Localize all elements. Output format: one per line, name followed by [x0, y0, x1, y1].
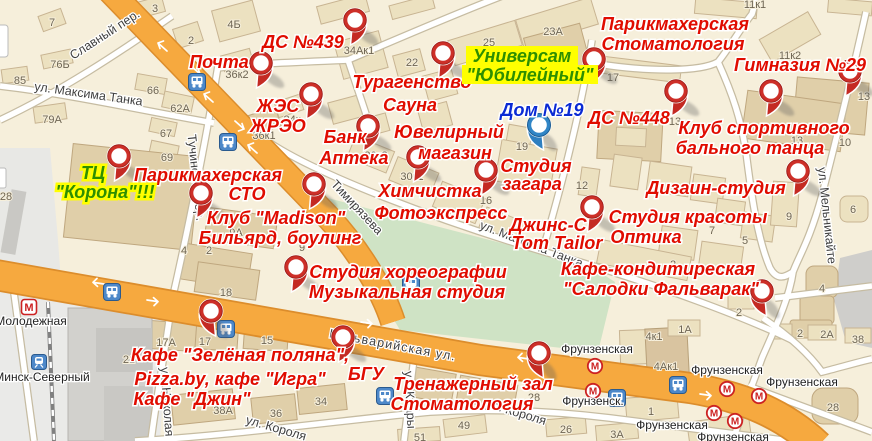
svg-text:Дизаин-студия: Дизаин-студия: [644, 178, 786, 198]
svg-text:ЖРЭО: ЖРЭО: [249, 116, 306, 136]
svg-text:2А: 2А: [820, 329, 834, 341]
svg-text:Оптика: Оптика: [610, 227, 681, 247]
svg-text:38: 38: [852, 334, 864, 346]
svg-text:ДС №439: ДС №439: [260, 32, 344, 52]
svg-text:10: 10: [839, 137, 851, 149]
svg-text:28: 28: [827, 402, 839, 414]
svg-text:ДС №448: ДС №448: [586, 108, 670, 128]
svg-text:28: 28: [0, 191, 12, 203]
svg-text:1А: 1А: [678, 324, 692, 336]
svg-text:76Б: 76Б: [50, 59, 69, 71]
svg-text:23А: 23А: [543, 26, 563, 38]
svg-text:Молодежная: Молодежная: [0, 314, 67, 328]
svg-text:67: 67: [160, 128, 172, 140]
svg-text:2: 2: [797, 328, 803, 340]
svg-text:Стоматология: Стоматология: [601, 34, 744, 54]
svg-text:Минск-Северный: Минск-Северный: [0, 370, 90, 384]
svg-text:Клуб "Madison": Клуб "Madison": [207, 208, 346, 228]
svg-text:Фрунзенская: Фрунзенская: [561, 342, 633, 356]
svg-text:62А: 62А: [170, 103, 190, 115]
svg-text:51: 51: [414, 432, 426, 441]
svg-text:Сауна: Сауна: [383, 95, 437, 115]
svg-text:36: 36: [270, 408, 282, 420]
svg-text:1: 1: [648, 406, 654, 418]
svg-text:49: 49: [458, 420, 470, 432]
svg-text:7: 7: [49, 17, 55, 29]
svg-text:69: 69: [161, 152, 173, 164]
svg-text:2: 2: [188, 35, 194, 47]
svg-text:19: 19: [516, 141, 528, 153]
svg-text:Tom Tailor: Tom Tailor: [512, 233, 604, 253]
svg-text:34: 34: [315, 396, 327, 408]
svg-text:Студия хореографии: Студия хореографии: [309, 262, 507, 282]
svg-text:Химчистка: Химчистка: [377, 181, 481, 201]
svg-text:3А: 3А: [610, 429, 624, 441]
svg-text:Тренажерный зал: Тренажерный зал: [393, 374, 553, 394]
svg-text:3: 3: [152, 3, 158, 15]
svg-text:Джинс-С: Джинс-С: [507, 215, 587, 235]
svg-text:М: М: [24, 302, 33, 314]
svg-text:Ювелирный: Ювелирный: [394, 122, 504, 142]
svg-text:"Корона"!!!: "Корона"!!!: [55, 182, 154, 202]
svg-text:БГУ: БГУ: [348, 364, 386, 384]
svg-text:66: 66: [147, 85, 159, 97]
svg-text:4: 4: [819, 283, 825, 295]
svg-text:Музыкальная студия: Музыкальная студия: [309, 282, 506, 302]
svg-text:Почта: Почта: [189, 52, 249, 72]
svg-text:Гимназия №29: Гимназия №29: [734, 55, 866, 75]
svg-text:ТЦ: ТЦ: [81, 163, 105, 183]
svg-text:22: 22: [406, 57, 418, 69]
svg-text:Банк: Банк: [324, 127, 368, 147]
svg-text:Стоматология: Стоматология: [390, 394, 533, 414]
svg-text:34Ак1: 34Ак1: [344, 45, 375, 57]
svg-text:4Ак1: 4Ак1: [654, 361, 678, 373]
svg-text:Турагенство: Турагенство: [352, 72, 471, 92]
svg-text:Фрунзенская: Фрунзенская: [691, 363, 763, 377]
svg-text:Кафе-кондитиреская: Кафе-кондитиреская: [561, 259, 756, 279]
svg-text:Парикмахерская: Парикмахерская: [601, 14, 749, 34]
svg-text:Кафе "Зелёная поляна",: Кафе "Зелёная поляна",: [131, 345, 349, 365]
svg-text:Кафе "Джин": Кафе "Джин": [133, 389, 251, 409]
svg-text:Клуб спортивного: Клуб спортивного: [678, 118, 849, 138]
svg-text:12: 12: [576, 180, 588, 192]
svg-text:5: 5: [742, 235, 748, 247]
svg-text:Pizza.by, кафе "Игра": Pizza.by, кафе "Игра": [134, 369, 326, 389]
svg-text:Универсам: Универсам: [473, 46, 571, 66]
svg-text:4Б: 4Б: [227, 19, 240, 31]
svg-text:СТО: СТО: [228, 184, 265, 204]
svg-text:85: 85: [14, 75, 26, 87]
svg-text:9: 9: [786, 211, 792, 223]
svg-text:"Юбилейный": "Юбилейный": [466, 65, 594, 85]
svg-text:4к1: 4к1: [645, 331, 662, 343]
svg-text:Студия: Студия: [500, 156, 572, 176]
svg-text:18: 18: [220, 287, 232, 299]
svg-text:магазин: магазин: [418, 143, 492, 163]
svg-text:Студия красоты: Студия красоты: [609, 207, 768, 227]
svg-text:Дом №19: Дом №19: [499, 100, 584, 120]
svg-text:загара: загара: [502, 174, 562, 194]
svg-text:Фрунзенская: Фрунзенская: [697, 430, 769, 441]
svg-text:Бильярд, боулинг: Бильярд, боулинг: [199, 228, 362, 248]
svg-text:6: 6: [850, 204, 856, 216]
svg-text:Аптека: Аптека: [318, 148, 388, 168]
svg-text:79А: 79А: [42, 114, 62, 126]
svg-text:4: 4: [181, 245, 187, 257]
svg-text:Фрунзенск.: Фрунзенск.: [562, 394, 624, 408]
svg-text:Фрунзенская: Фрунзенская: [766, 375, 838, 389]
svg-text:Парикмахерская: Парикмахерская: [134, 165, 282, 185]
svg-text:2: 2: [736, 307, 742, 319]
svg-text:ЖЭС: ЖЭС: [256, 96, 301, 116]
svg-text:26: 26: [560, 424, 572, 436]
svg-text:бального танца: бального танца: [676, 138, 825, 158]
svg-text:Фотоэкспресс: Фотоэкспресс: [375, 203, 508, 223]
svg-text:11к1: 11к1: [744, 0, 766, 11]
svg-text:"Салодки Фальварак": "Салодки Фальварак": [563, 279, 759, 299]
